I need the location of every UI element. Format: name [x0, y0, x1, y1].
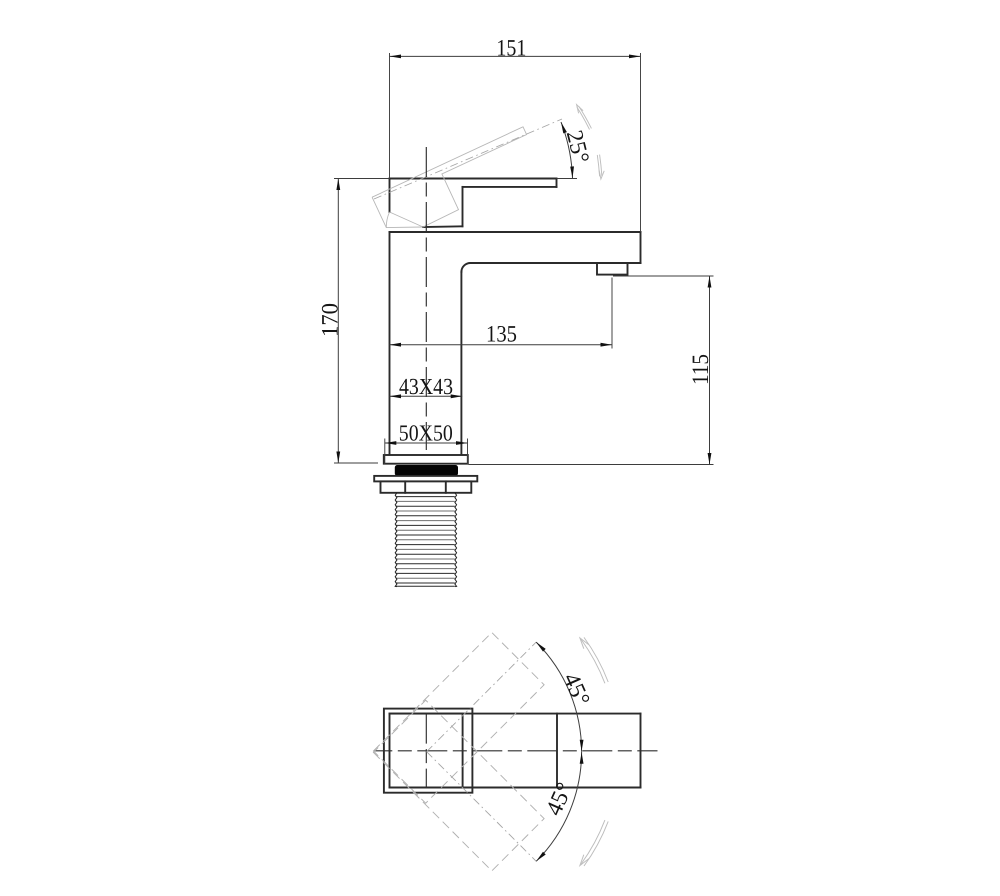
svg-text:115: 115 — [688, 354, 714, 385]
svg-text:170: 170 — [317, 303, 343, 337]
svg-text:135: 135 — [486, 322, 517, 348]
svg-text:43X43: 43X43 — [399, 374, 453, 399]
svg-text:50X50: 50X50 — [399, 421, 453, 446]
svg-text:151: 151 — [496, 36, 526, 62]
